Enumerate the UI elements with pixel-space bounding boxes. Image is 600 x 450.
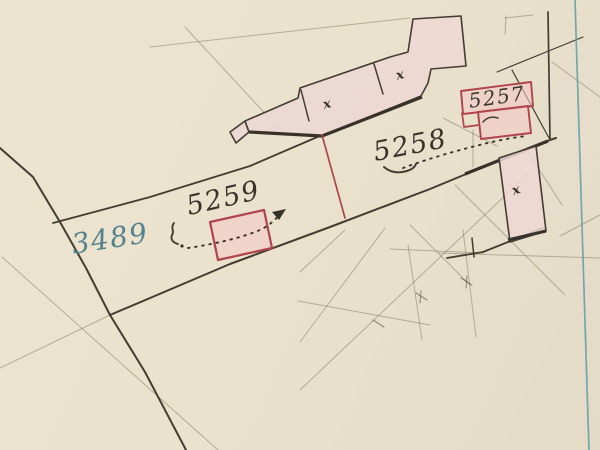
boundary-left [0, 148, 186, 450]
path-hook-5259 [171, 223, 178, 244]
parcel-label-5258: 5258 [371, 123, 450, 168]
parcel-label-3489: 3489 [69, 216, 150, 261]
cadastral-map-scan: x x x 3489 5259 5258 5257 [0, 0, 600, 450]
building-right [499, 146, 546, 242]
path-dot [180, 244, 183, 247]
building-strip [245, 16, 466, 136]
red-box-5257-lower [478, 106, 531, 139]
survey-tick-marks [373, 276, 472, 327]
boundary-vertical-right [548, 12, 550, 140]
red-boundary-line [322, 135, 345, 218]
red-box-5257-notch [462, 113, 479, 127]
map-drawing: x x x 3489 5259 5258 5257 [0, 0, 600, 450]
survey-blue-line [575, 0, 589, 450]
arrow-head [272, 209, 286, 220]
boundary-diagonal-topright [497, 37, 583, 72]
